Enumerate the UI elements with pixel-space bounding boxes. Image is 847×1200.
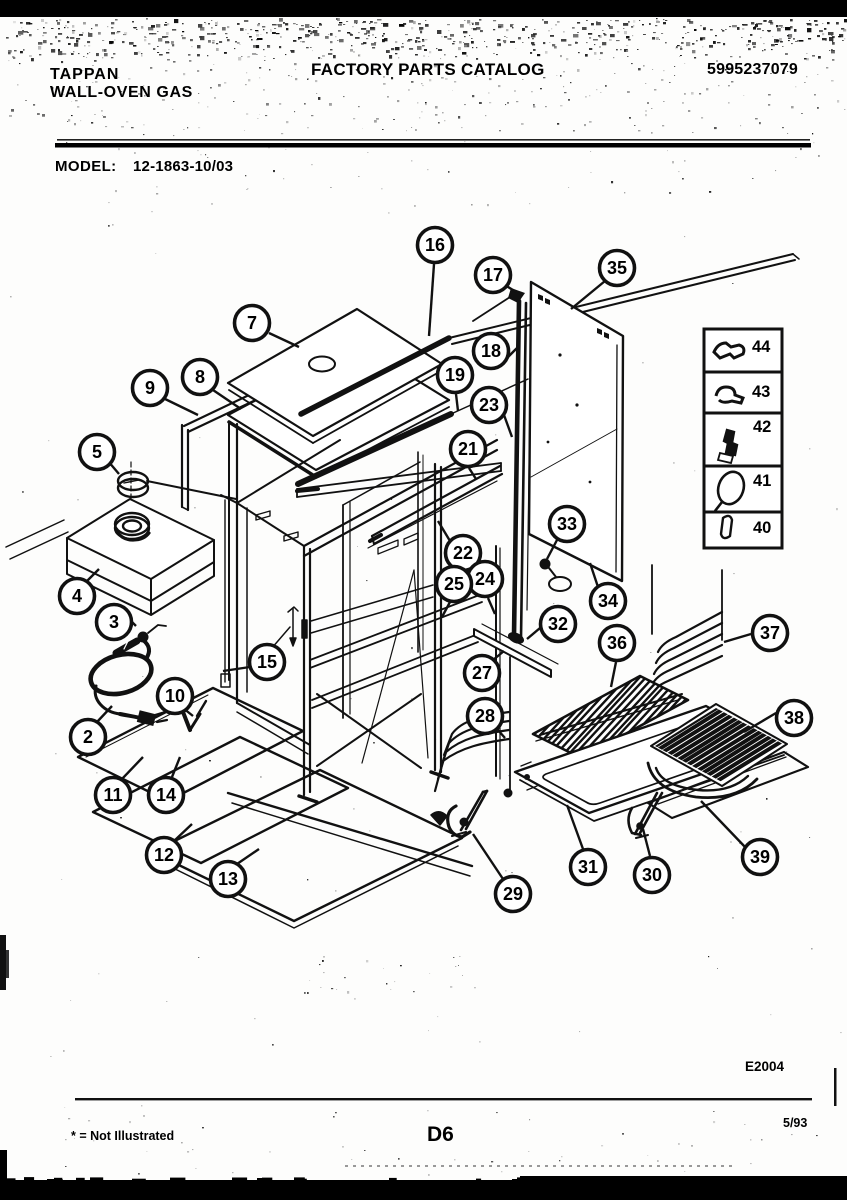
svg-text:36: 36 [607,633,627,653]
svg-text:12-1863-10/03: 12-1863-10/03 [133,158,233,175]
svg-text:23: 23 [479,395,499,415]
svg-text:32: 32 [548,614,568,634]
svg-text:* = Not Illustrated: * = Not Illustrated [71,1129,174,1143]
svg-text:11: 11 [103,785,122,805]
svg-text:2: 2 [83,727,93,747]
svg-text:13: 13 [218,869,238,889]
svg-text:25: 25 [444,574,464,594]
svg-text:MODEL:: MODEL: [55,158,117,175]
svg-text:E2004: E2004 [745,1059,785,1074]
svg-text:12: 12 [154,845,174,865]
svg-text:40: 40 [753,519,771,537]
svg-text:35: 35 [607,258,627,278]
svg-text:27: 27 [472,663,492,683]
svg-text:31: 31 [578,857,598,877]
svg-text:43: 43 [752,383,770,401]
svg-text:TAPPAN: TAPPAN [50,66,119,83]
svg-text:28: 28 [475,706,495,726]
svg-text:22: 22 [453,543,473,563]
svg-text:29: 29 [503,884,523,904]
svg-text:37: 37 [760,623,780,643]
svg-text:33: 33 [557,514,577,534]
svg-text:7: 7 [247,313,257,333]
svg-text:4: 4 [72,586,82,606]
svg-text:18: 18 [481,341,501,361]
svg-text:3: 3 [109,612,119,632]
svg-text:41: 41 [753,472,771,490]
svg-text:D6: D6 [427,1123,454,1146]
svg-text:14: 14 [156,785,176,805]
svg-text:8: 8 [195,367,205,387]
svg-text:5/93: 5/93 [783,1116,807,1130]
svg-text:19: 19 [445,365,465,385]
svg-text:FACTORY PARTS CATALOG: FACTORY PARTS CATALOG [311,60,545,79]
svg-text:39: 39 [750,847,770,867]
svg-text:17: 17 [483,265,503,285]
svg-text:5995237079: 5995237079 [707,61,798,78]
svg-text:5: 5 [92,442,102,462]
svg-text:38: 38 [784,708,804,728]
svg-text:9: 9 [145,378,155,398]
svg-text:10: 10 [165,686,185,706]
svg-text:21: 21 [458,439,478,459]
svg-text:15: 15 [257,652,277,672]
svg-text:WALL-OVEN GAS: WALL-OVEN GAS [50,84,193,101]
svg-text:42: 42 [753,418,771,436]
svg-text:44: 44 [752,338,771,356]
svg-text:34: 34 [598,591,618,611]
svg-text:24: 24 [475,569,495,589]
svg-text:30: 30 [642,865,662,885]
svg-text:16: 16 [425,235,445,255]
